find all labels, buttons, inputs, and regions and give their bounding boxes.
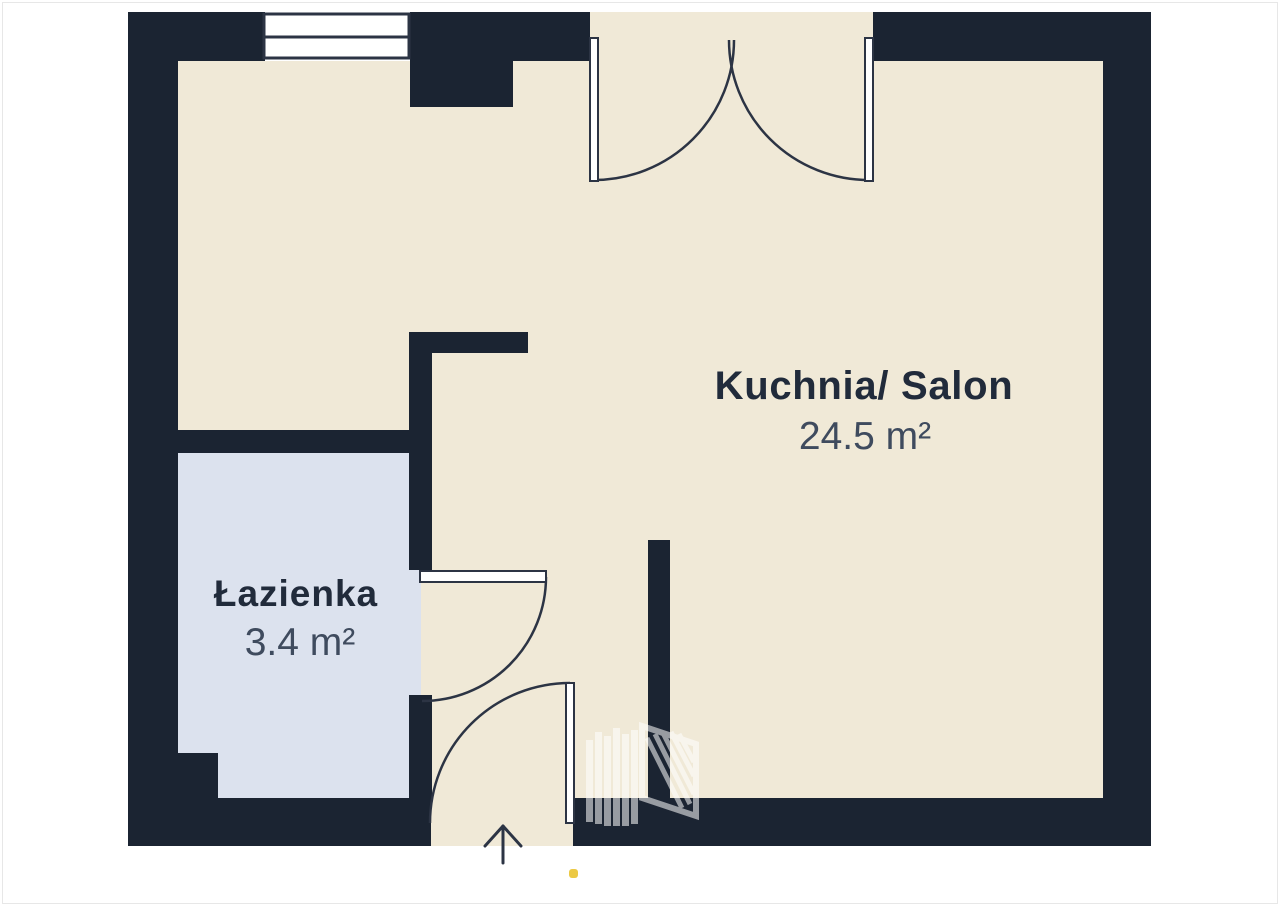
wall-entrance-jamb	[409, 695, 432, 798]
wall-bathroom-top	[178, 430, 432, 453]
room-label-kuchnia-salon: Kuchnia/ Salon	[715, 364, 1014, 408]
accent-dot-icon	[569, 869, 578, 878]
wall-pier-top	[410, 61, 513, 107]
wall-bathroom-right	[409, 332, 432, 570]
room-area-lazienka: 3.4 m²	[245, 621, 356, 664]
room-area-kuchnia-salon: 24.5 m²	[799, 415, 931, 458]
window-icon	[264, 14, 409, 58]
floorplan-drawing: Kuchnia/ Salon 24.5 m² Łazienka 3.4 m²	[0, 0, 1280, 906]
wall-stub	[409, 332, 528, 353]
floorplan-page: Kuchnia/ Salon 24.5 m² Łazienka 3.4 m²	[0, 0, 1280, 906]
wall-bathroom-step	[178, 753, 218, 798]
room-label-lazienka: Łazienka	[214, 573, 378, 614]
